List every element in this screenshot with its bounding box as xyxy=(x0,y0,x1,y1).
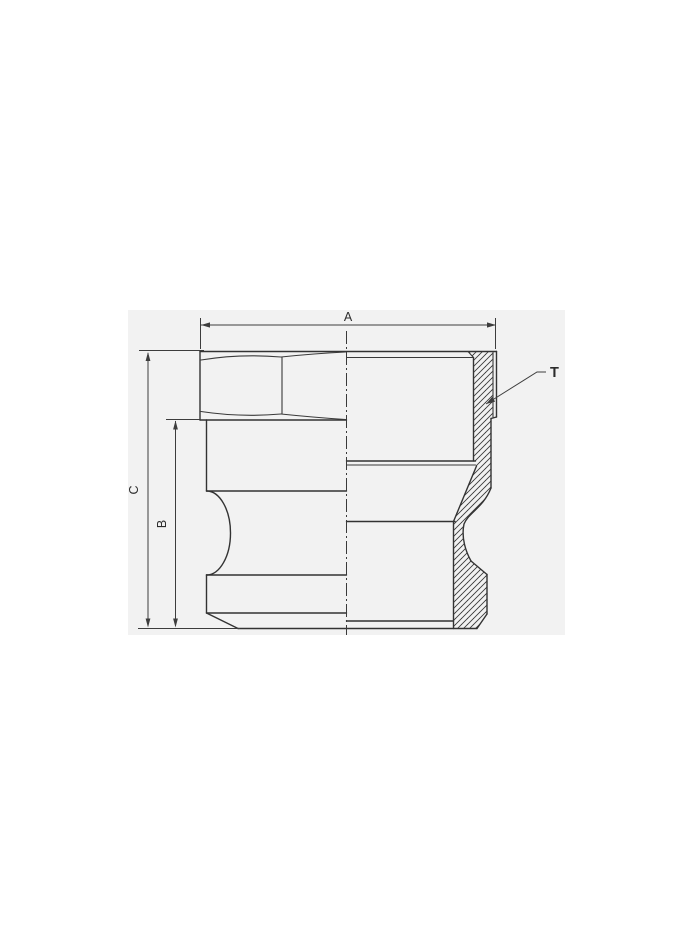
dimension-c-label: C xyxy=(128,485,141,494)
dimension-b-label: B xyxy=(155,520,169,528)
arrow-down-icon xyxy=(173,619,178,628)
arrow-up-icon xyxy=(173,421,178,430)
arrow-left-icon xyxy=(201,322,210,327)
dimension-a: A xyxy=(201,310,497,349)
drawing-canvas: A C B xyxy=(128,310,565,635)
fitting-exterior-left-view xyxy=(200,352,497,629)
dimension-a-label: A xyxy=(344,310,353,324)
arrow-up-icon xyxy=(146,352,151,361)
arrow-right-icon xyxy=(487,322,496,327)
dimension-c: C xyxy=(128,351,204,628)
dimension-b: B xyxy=(155,420,200,628)
thread-label: T xyxy=(550,365,559,381)
arrow-down-icon xyxy=(146,619,151,628)
thread-leader-t: T xyxy=(485,365,559,406)
page: A C B xyxy=(0,0,694,947)
technical-drawing: A C B xyxy=(128,310,565,635)
